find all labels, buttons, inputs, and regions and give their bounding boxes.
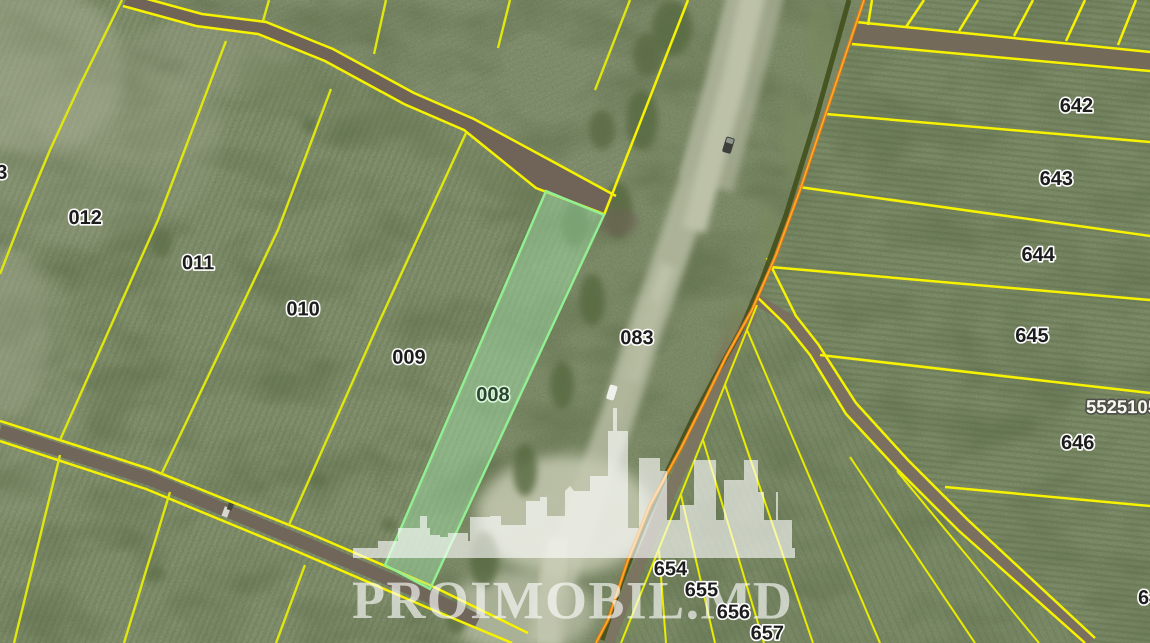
svg-text:643: 643 xyxy=(1040,168,1073,190)
svg-text:010: 010 xyxy=(286,298,319,320)
svg-text:5525105: 5525105 xyxy=(1086,396,1150,417)
svg-text:645: 645 xyxy=(1015,325,1048,347)
svg-text:13: 13 xyxy=(0,162,7,184)
svg-text:083: 083 xyxy=(620,327,653,349)
svg-text:655: 655 xyxy=(685,579,718,601)
svg-text:012: 012 xyxy=(69,207,102,229)
svg-text:642: 642 xyxy=(1060,95,1093,117)
svg-text:009: 009 xyxy=(392,347,425,369)
svg-text:008: 008 xyxy=(476,384,509,406)
svg-text:656: 656 xyxy=(717,601,750,623)
svg-text:654: 654 xyxy=(654,558,688,580)
svg-text:011: 011 xyxy=(182,252,214,274)
svg-text:657: 657 xyxy=(751,622,784,643)
svg-text:64: 64 xyxy=(1138,587,1150,609)
svg-text:646: 646 xyxy=(1061,432,1094,454)
svg-text:644: 644 xyxy=(1021,244,1055,266)
